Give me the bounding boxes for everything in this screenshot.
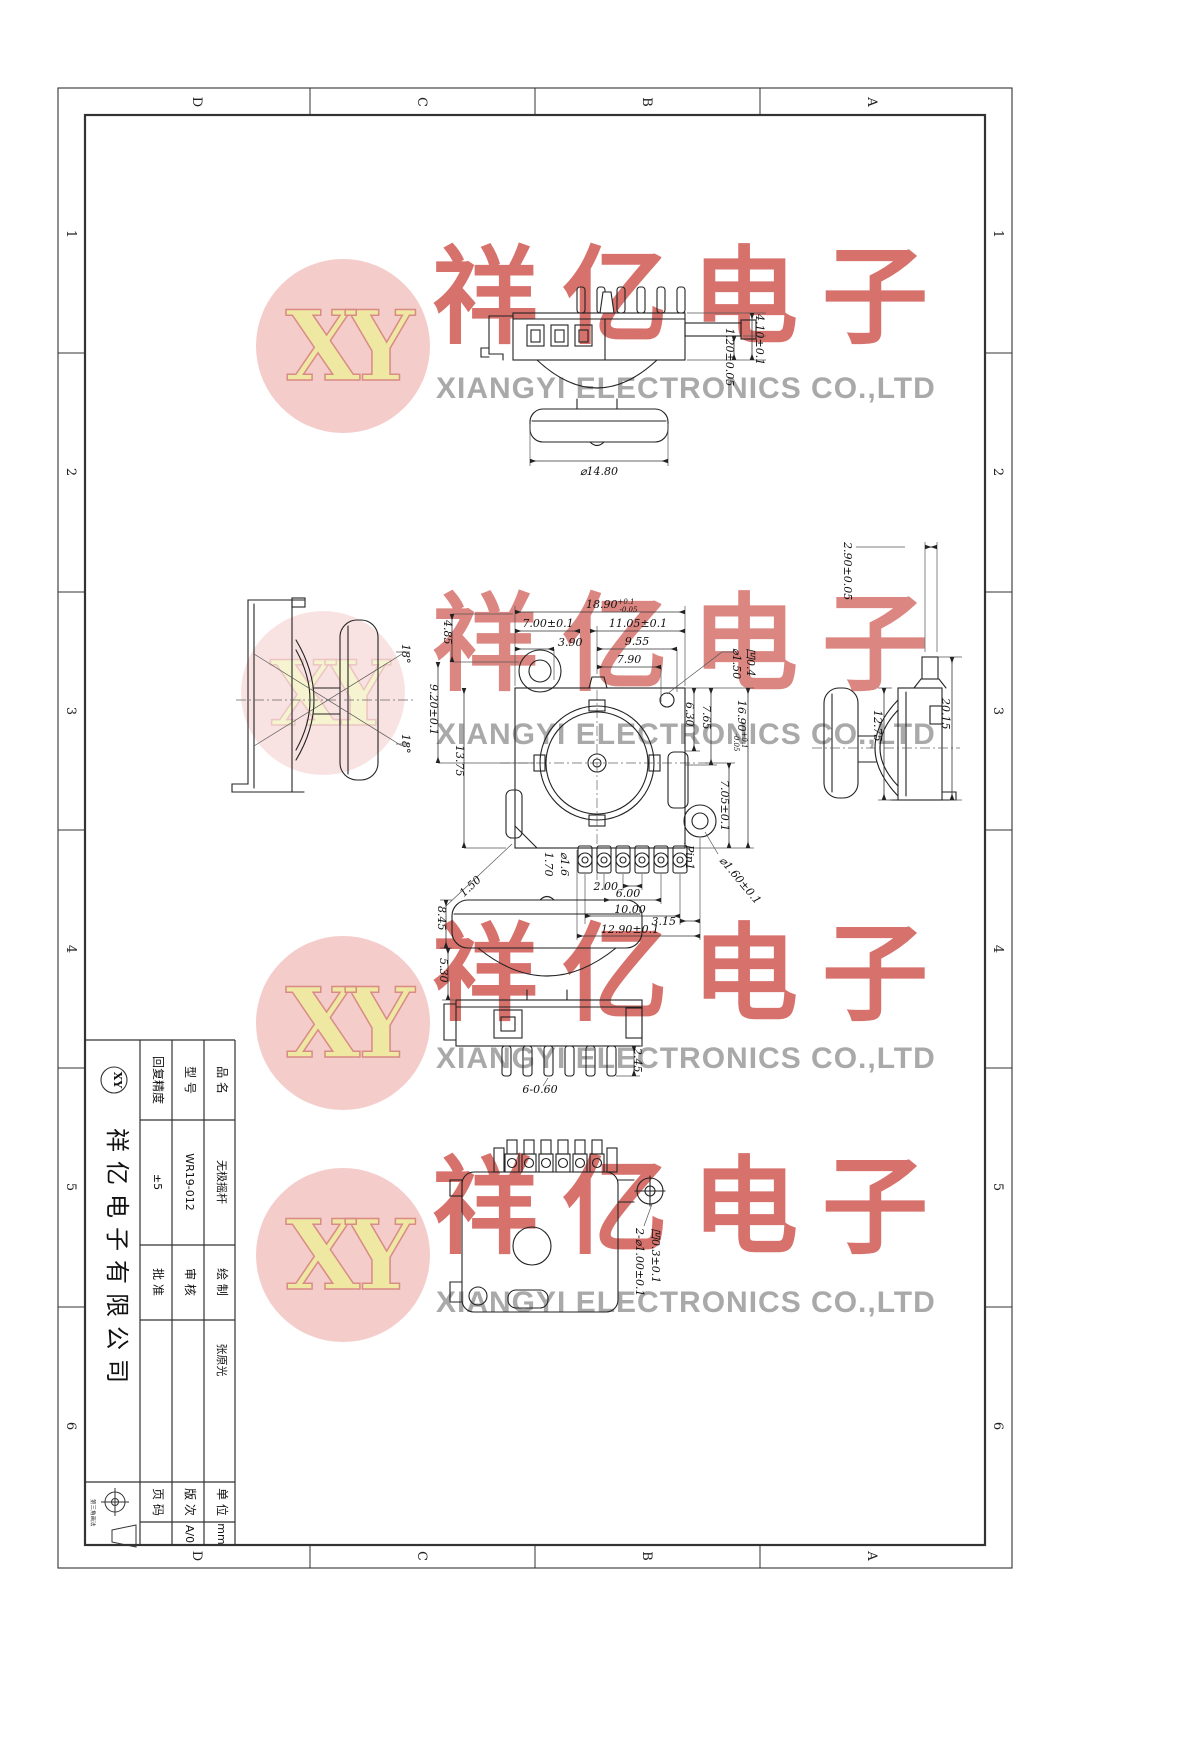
title-block: 品 名 型 号 回复精度 无极摇杆 WR19-012 ±5 绘 制 审 核 批 … [85,1040,235,1547]
company-name: 祥亿电子有限公司 [103,1128,131,1392]
dim-label: 7.05±0.1 [718,780,731,831]
zone-letter: B [639,1551,654,1561]
dim-label: 8.45 [435,906,448,931]
dim-label: 凹0.3±0.1 [649,1228,662,1283]
dim-label: 16.90+0.1-0.05 [732,700,748,752]
title-drawn-label: 绘 制 [215,1268,230,1296]
zone-number: 3 [990,707,1005,715]
dim-label: ⌀14.80 [580,465,618,478]
dim-label: 4.85 [441,619,454,645]
view-front: 18.90+0.1-0.05 7.00±0.1 3.90 11.05±0.1 9… [427,598,764,940]
title-rev-label: 版 次 [183,1488,197,1516]
zone-letter: C [414,97,429,107]
drawing-linework: D C B A D C B A 1 2 3 4 5 6 1 2 3 4 5 6 [0,0,1200,1755]
dim-label: 11.05±0.1 [609,617,667,630]
title-approve-label: 批 准 [151,1268,166,1296]
dim-label: 18° [399,644,412,664]
dim-label: 18° [399,734,412,754]
zone-letter: D [189,97,204,107]
view-side-elevation: 4.10±0.1 1.20±0.05 ⌀14.80 [481,287,766,478]
zone-number: 6 [990,1422,1005,1430]
dim-label: 2.45 [631,1047,644,1073]
dim-label: 4.10±0.1 [753,313,766,365]
projection-note: 第三角画法 [89,1499,97,1527]
dim-label: 1.50 [457,873,484,899]
dim-label: 3.90 [558,636,583,649]
view-left-profile: 18° 18° [232,598,416,792]
sheet-frame [58,88,1012,1568]
title-precision-value: ±5 [151,1174,164,1190]
company-logo-text: XY [111,1072,124,1089]
title-precision-label: 回复精度 [151,1056,166,1104]
view-right-profile: 2.90±0.05 20.15 12.75 [812,541,962,800]
zone-number: 2 [990,468,1005,476]
zone-number: 4 [990,945,1005,953]
zone-number: 2 [63,468,78,476]
title-page-label: 页 码 [151,1488,165,1516]
zone-number: 5 [990,1183,1005,1191]
zone-number: 4 [63,945,78,953]
drawing-sheet: XY 祥亿电子 XIANGYI ELECTRONICS CO.,LTD XY 祥… [0,0,1200,1755]
dim-label: 13.75 [453,745,466,777]
zone-number: 3 [63,707,78,715]
zone-number: 5 [63,1183,78,1191]
dim-label: ⌀1.6 [558,852,571,876]
view-back: 2-⌀1.00±0.1 凹0.3±0.1 [450,1140,665,1312]
projection-symbol [101,1488,136,1547]
title-rev-value: A/0 [183,1525,196,1543]
dim-label: 5.30 [437,958,450,983]
zone-letter: A [864,96,879,107]
dim-label: 7.65 [700,705,713,730]
dim-label: 12.90±0.1 [601,923,659,936]
dim-label: 7.90 [617,653,642,666]
dim-label: 1.70 [542,852,555,877]
dim-label: 6.30 [683,702,696,727]
dim-label: 6.00 [616,887,641,900]
title-unit-value: mm [215,1523,228,1544]
dim-label: 1.20±0.05 [723,328,736,386]
title-unit-label: 单 位 [215,1488,230,1516]
zone-number: 1 [63,230,78,238]
dim-label: 12.75 [871,710,884,742]
zone-letter: B [639,97,654,107]
dim-label: 凹0.4 [744,648,757,677]
zone-letter: A [864,1550,879,1561]
dim-label: 6-0.60 [522,1083,557,1096]
dim-label: Pin1 [683,844,696,870]
dim-label: 9.55 [625,635,650,648]
zone-number: 6 [63,1422,78,1430]
title-model-value: WR19-012 [183,1153,196,1210]
title-product-value: 无极摇杆 [215,1160,229,1204]
title-drawn-by: 张原光 [215,1344,229,1377]
dim-label: 2.00 [593,880,619,893]
dim-label: 3.15 [652,915,677,928]
zone-number: 1 [990,230,1005,238]
zone-letter: C [414,1551,429,1561]
title-product-label: 品 名 [215,1066,230,1094]
title-check-label: 审 核 [183,1268,198,1296]
dim-label: 2.90±0.05 [841,541,854,600]
dim-label: 20.15 [939,697,952,730]
zone-letter: D [189,1551,204,1561]
dim-label: 9.20±0.1 [427,684,440,735]
dim-label: 2-⌀1.00±0.1 [633,1227,646,1297]
dim-label: ⌀1.60±0.1 [717,854,764,907]
dim-label: 7.00±0.1 [522,617,573,630]
dim-label: ⌀1.50 [730,648,743,679]
title-model-label: 型 号 [183,1066,197,1094]
